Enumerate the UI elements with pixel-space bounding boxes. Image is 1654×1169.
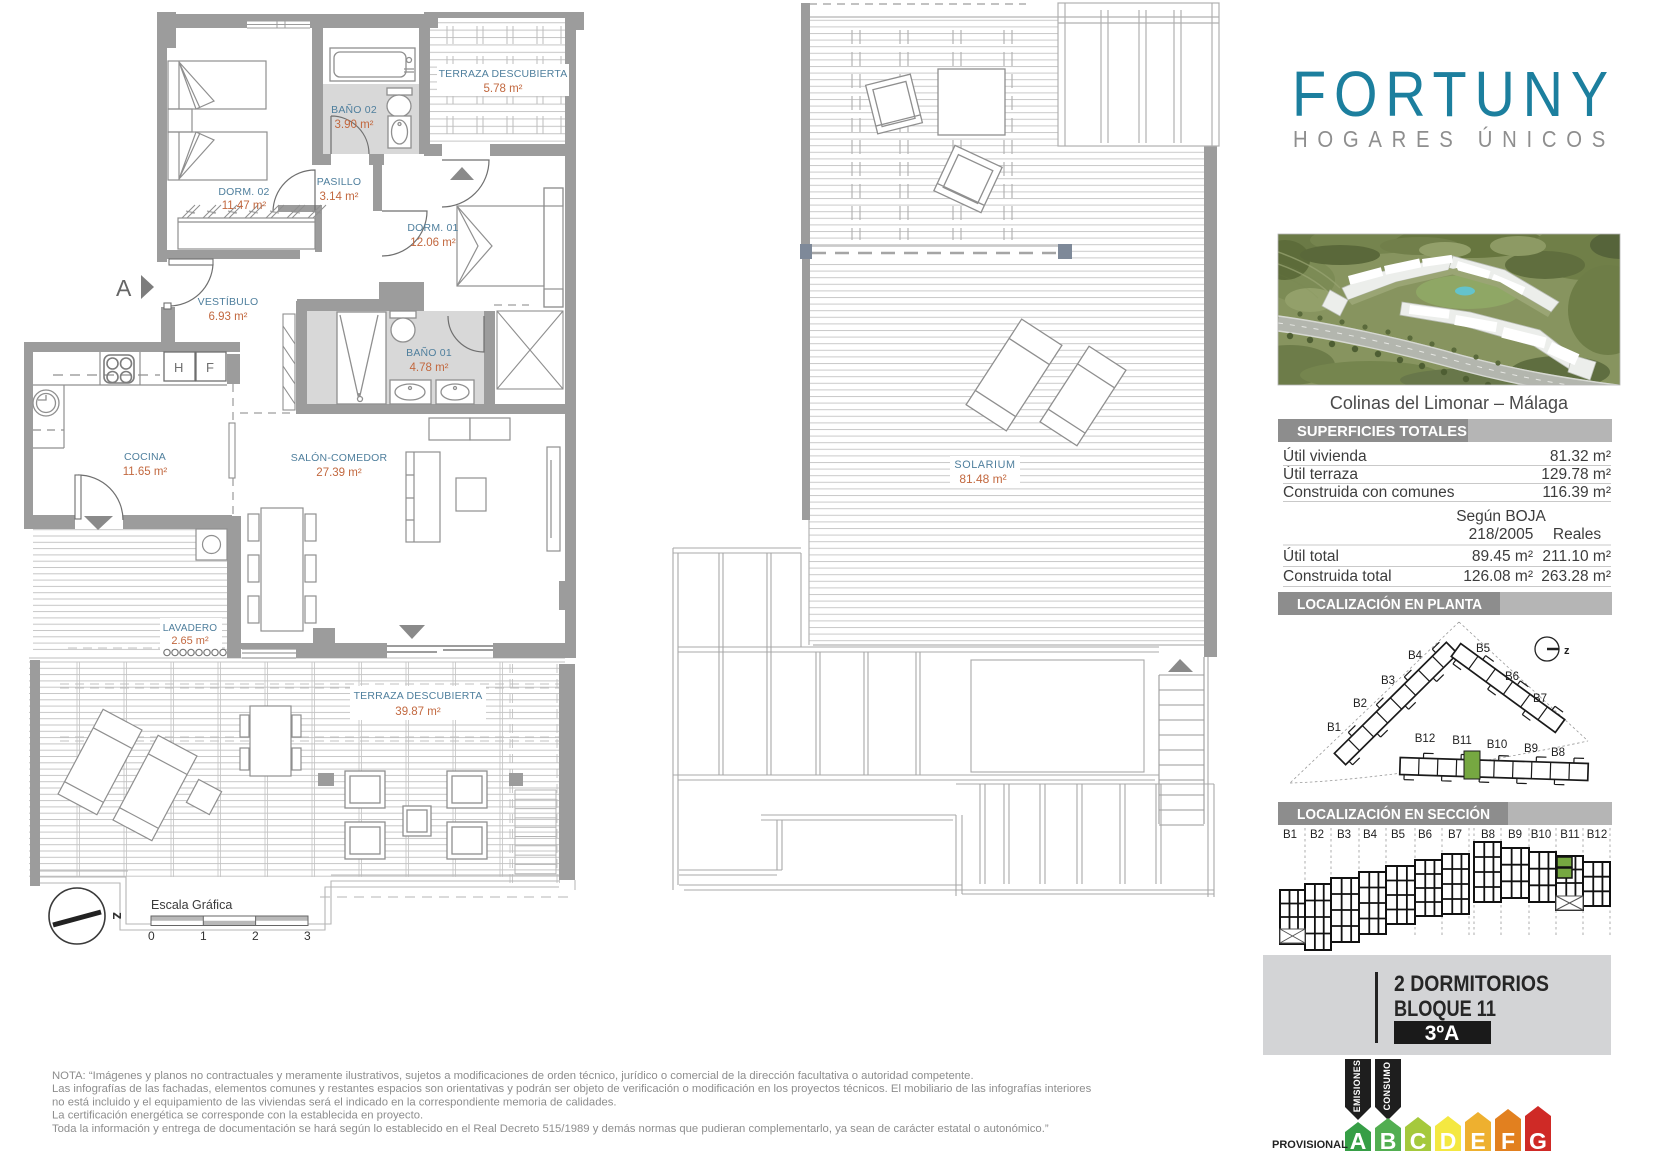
svg-text:z: z (1564, 645, 1570, 657)
svg-text:B10: B10 (1531, 829, 1551, 841)
svg-text:Según BOJA: Según BOJA (1456, 508, 1546, 525)
svg-text:G: G (1529, 1128, 1547, 1154)
svg-text:81.48 m²: 81.48 m² (959, 472, 1006, 486)
svg-text:LAVADERO: LAVADERO (163, 623, 218, 634)
svg-text:SALÓN-COMEDOR: SALÓN-COMEDOR (291, 451, 388, 464)
svg-text:B: B (1380, 1128, 1397, 1154)
svg-text:126.08 m²: 126.08 m² (1463, 568, 1533, 585)
svg-text:4.78 m²: 4.78 m² (410, 362, 449, 374)
svg-text:3ºA: 3ºA (1425, 1022, 1460, 1045)
svg-text:0: 0 (148, 929, 155, 943)
svg-text:FORTUNY: FORTUNY (1292, 58, 1616, 130)
svg-text:Útil total: Útil total (1283, 548, 1339, 565)
svg-text:1: 1 (200, 929, 207, 943)
svg-text:B3: B3 (1337, 829, 1351, 841)
svg-text:B5: B5 (1391, 829, 1405, 841)
svg-text:11.65 m²: 11.65 m² (123, 466, 168, 478)
svg-text:39.87 m²: 39.87 m² (395, 706, 441, 718)
svg-text:EMISIONES: EMISIONES (1352, 1060, 1362, 1112)
svg-text:B12: B12 (1415, 733, 1435, 745)
svg-text:z: z (109, 912, 126, 920)
svg-text:B11: B11 (1560, 829, 1580, 841)
svg-text:B1: B1 (1327, 722, 1341, 734)
svg-text:B1: B1 (1283, 829, 1297, 841)
svg-text:A: A (1350, 1128, 1367, 1154)
svg-text:B7: B7 (1448, 829, 1462, 841)
svg-text:BLOQUE 11: BLOQUE 11 (1394, 996, 1496, 1021)
svg-text:LOCALIZACIÓN EN PLANTA: LOCALIZACIÓN EN PLANTA (1297, 595, 1482, 613)
svg-text:B9: B9 (1524, 743, 1538, 755)
svg-text:COCINA: COCINA (124, 451, 166, 463)
svg-text:SUPERFICIES TOTALES: SUPERFICIES TOTALES (1297, 423, 1467, 440)
svg-text:BAÑO 02: BAÑO 02 (331, 103, 377, 116)
svg-text:B2: B2 (1353, 698, 1367, 710)
svg-text:129.78 m²: 129.78 m² (1541, 466, 1611, 483)
svg-text:89.45 m²: 89.45 m² (1472, 548, 1533, 565)
svg-text:263.28 m²: 263.28 m² (1541, 568, 1611, 585)
svg-text:B4: B4 (1363, 829, 1378, 841)
svg-text:La certificación energética se: La certificación energética se correspon… (52, 1110, 423, 1122)
svg-text:Toda la información y entrega: Toda la información y entrega de documen… (52, 1123, 1049, 1135)
svg-text:PASILLO: PASILLO (317, 176, 361, 188)
svg-text:6.93 m²: 6.93 m² (209, 311, 248, 323)
svg-text:F: F (1501, 1128, 1515, 1154)
svg-text:211.10 m²: 211.10 m² (1542, 548, 1611, 565)
svg-text:Las infografías de las fachada: Las infografías de las fachadas, element… (52, 1083, 1092, 1095)
svg-text:SOLARIUM: SOLARIUM (954, 459, 1015, 471)
svg-text:5.78 m²: 5.78 m² (484, 83, 523, 95)
svg-text:B9: B9 (1508, 829, 1522, 841)
svg-text:218/2005: 218/2005 (1469, 526, 1534, 543)
svg-text:D: D (1440, 1128, 1457, 1154)
svg-text:DORM. 02: DORM. 02 (218, 186, 269, 198)
svg-text:3.90 m²: 3.90 m² (335, 119, 374, 131)
svg-text:no está incluido y el equipami: no está incluido y el equipamiento de la… (52, 1096, 617, 1108)
svg-text:Útil terraza: Útil terraza (1283, 466, 1358, 483)
svg-text:12.06 m²: 12.06 m² (410, 237, 456, 249)
svg-text:Construida total: Construida total (1283, 568, 1392, 585)
svg-text:Construida con comunes: Construida con comunes (1283, 484, 1455, 501)
svg-text:2 DORMITORIOS: 2 DORMITORIOS (1394, 971, 1549, 996)
svg-text:Reales: Reales (1553, 526, 1601, 543)
svg-text:81.32 m²: 81.32 m² (1550, 448, 1611, 465)
svg-text:CONSUMO: CONSUMO (1382, 1062, 1392, 1111)
svg-text:E: E (1470, 1128, 1485, 1154)
svg-text:A: A (116, 275, 132, 301)
svg-text:B11: B11 (1452, 735, 1472, 747)
svg-text:B3: B3 (1381, 675, 1395, 687)
svg-text:B4: B4 (1408, 650, 1423, 662)
svg-text:DORM. 01: DORM. 01 (407, 222, 458, 234)
svg-text:HOGARES ÚNICOS: HOGARES ÚNICOS (1293, 126, 1615, 152)
svg-text:2: 2 (252, 929, 259, 943)
svg-text:2.65 m²: 2.65 m² (171, 635, 209, 647)
svg-text:C: C (1410, 1128, 1427, 1154)
svg-text:PROVISIONAL: PROVISIONAL (1272, 1139, 1348, 1151)
svg-text:VESTÍBULO: VESTÍBULO (198, 295, 259, 308)
svg-text:3.14 m²: 3.14 m² (320, 191, 359, 203)
svg-text:27.39 m²: 27.39 m² (316, 467, 362, 479)
svg-text:3: 3 (304, 929, 311, 943)
svg-text:B6: B6 (1418, 829, 1432, 841)
svg-text:B5: B5 (1476, 643, 1490, 655)
svg-text:B6: B6 (1505, 671, 1519, 683)
svg-text:NOTA: “Imágenes y planos no co: NOTA: “Imágenes y planos no contractuale… (52, 1070, 974, 1082)
svg-text:B2: B2 (1310, 829, 1324, 841)
svg-text:F: F (206, 360, 214, 375)
svg-text:B12: B12 (1587, 829, 1607, 841)
svg-text:11.47 m²: 11.47 m² (222, 200, 267, 212)
svg-text:BAÑO 01: BAÑO 01 (406, 346, 452, 359)
svg-text:TERRAZA DESCUBIERTA: TERRAZA DESCUBIERTA (439, 68, 568, 80)
svg-text:Útil vivienda: Útil vivienda (1283, 448, 1367, 465)
svg-text:B8: B8 (1481, 829, 1495, 841)
svg-text:LOCALIZACIÓN EN SECCIÓN: LOCALIZACIÓN EN SECCIÓN (1297, 805, 1490, 823)
svg-text:H: H (174, 360, 183, 375)
svg-text:116.39 m²: 116.39 m² (1542, 484, 1611, 501)
svg-text:Escala Gráfica: Escala Gráfica (151, 898, 232, 912)
svg-text:B8: B8 (1551, 747, 1565, 759)
svg-text:TERRAZA DESCUBIERTA: TERRAZA DESCUBIERTA (354, 690, 483, 702)
svg-text:B7: B7 (1533, 693, 1547, 705)
svg-text:B10: B10 (1487, 739, 1507, 751)
svg-text:Colinas del Limonar – Málaga: Colinas del Limonar – Málaga (1330, 393, 1569, 413)
